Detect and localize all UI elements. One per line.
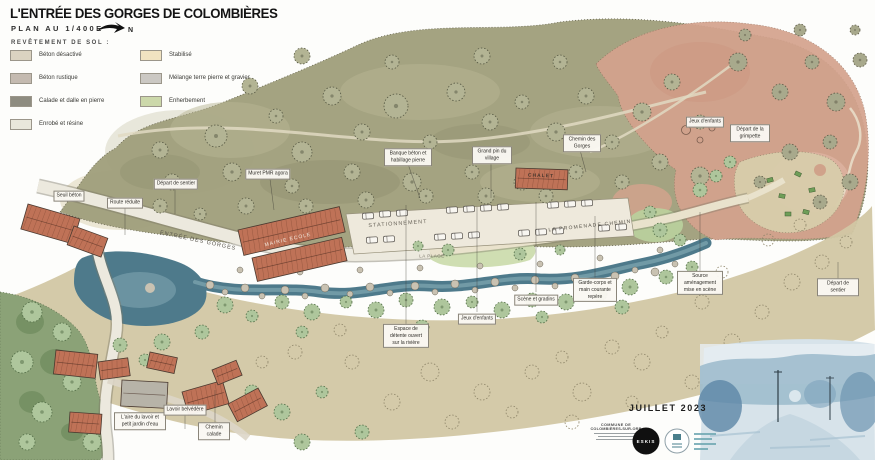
building-label-chalet: CHALET <box>528 173 554 180</box>
legend-label: Stabilisé <box>169 52 192 58</box>
legend-item: Béton rustique <box>10 73 130 83</box>
legend: Béton désactivé Béton rustique Calade et… <box>10 50 250 129</box>
map-label-scene-gradins: Scène et gradins <box>514 295 558 306</box>
map-label-grand-pin: Grand pin du village <box>472 146 512 164</box>
legend-swatch <box>140 96 162 107</box>
legend-swatch <box>140 73 162 84</box>
building <box>121 380 168 408</box>
legend-item: Enrobé et résine <box>10 119 130 129</box>
north-label: N <box>128 27 133 34</box>
map-label-espace-detente: Espace de détente ouvert sur la rivière <box>383 324 429 348</box>
map-label-lavoir-jardin: L'aire du lavoir et petit jardin d'eau <box>114 412 166 430</box>
legend-item: Enherbement <box>140 96 250 106</box>
map-label-seuil-beton: Seuil béton <box>53 191 84 202</box>
map-label-grimpette: Départ de la grimpette <box>730 124 770 142</box>
plan-canvas: L'ENTRÉE DES GORGES DE COLOMBIÈRES PLAN … <box>0 0 875 460</box>
legend-swatch <box>10 73 32 84</box>
legend-label: Enrobé et résine <box>39 121 83 127</box>
legend-swatch <box>10 96 32 107</box>
map-label-lavoir-belvedere: Lavoir belvédère <box>164 405 207 416</box>
eskis-logo-text: ESKIS <box>637 439 656 444</box>
map-label-depart-sentier-ouest: Départ de sentier <box>154 179 198 190</box>
partner-text-bar <box>694 433 716 435</box>
building <box>69 412 102 434</box>
map-label-chemin-calade: Chemin calade <box>198 422 230 440</box>
plan-scale: PLAN AU 1/400E <box>11 24 104 33</box>
legend-label: Mélange terre pierre et gravier <box>169 75 250 81</box>
legend-heading: REVÊTEMENT DE SOL : <box>11 40 110 46</box>
map-label-muret-pmr: Muret PMR agora <box>245 169 290 180</box>
map-label-garde-corps: Garde-corps et main courante repère <box>573 278 617 302</box>
area-label-la-plage: LA PLAGE <box>419 254 445 259</box>
map-label-depart-sentier-est: Départ de sentier <box>817 278 859 296</box>
credit-text-bar <box>598 436 634 438</box>
partner-logo <box>665 429 689 453</box>
map-label-jeux-enfants-nord: Jeux d'enfants <box>686 117 724 128</box>
logo-strip: ESKIS <box>630 424 740 458</box>
legend-label: Enherbement <box>169 98 205 104</box>
page-title: L'ENTRÉE DES GORGES DE COLOMBIÈRES <box>10 5 277 21</box>
legend-swatch <box>10 119 32 130</box>
north-arrow-icon: N <box>95 21 135 37</box>
plan-date: JUILLET 2023 <box>629 403 707 413</box>
partner-text-bar <box>694 448 708 450</box>
legend-label: Béton désactivé <box>39 52 82 58</box>
legend-label: Béton rustique <box>39 75 78 81</box>
building <box>53 350 97 378</box>
legend-swatch <box>140 50 162 61</box>
legend-item: Stabilisé <box>140 50 250 60</box>
legend-item: Mélange terre pierre et gravier <box>140 73 250 83</box>
legend-item: Calade et dalle en pierre <box>10 96 130 106</box>
map-label-chemin-des-gorges: Chemin des Gorges <box>563 134 601 152</box>
partner-text-bar <box>694 443 716 445</box>
legend-swatch <box>10 50 32 61</box>
map-label-source: Source aménagement mise en scène <box>677 271 723 295</box>
legend-item: Béton désactivé <box>10 50 130 60</box>
building <box>98 358 130 380</box>
partner-text-bar <box>694 438 712 440</box>
map-label-banque-beton: Banque béton et habillage pierre <box>384 148 432 166</box>
legend-label: Calade et dalle en pierre <box>39 98 104 104</box>
map-label-route-reduite: Route réduite <box>107 198 143 209</box>
map-label-jeux-enfants-sud: Jeux d'enfants <box>458 314 496 325</box>
